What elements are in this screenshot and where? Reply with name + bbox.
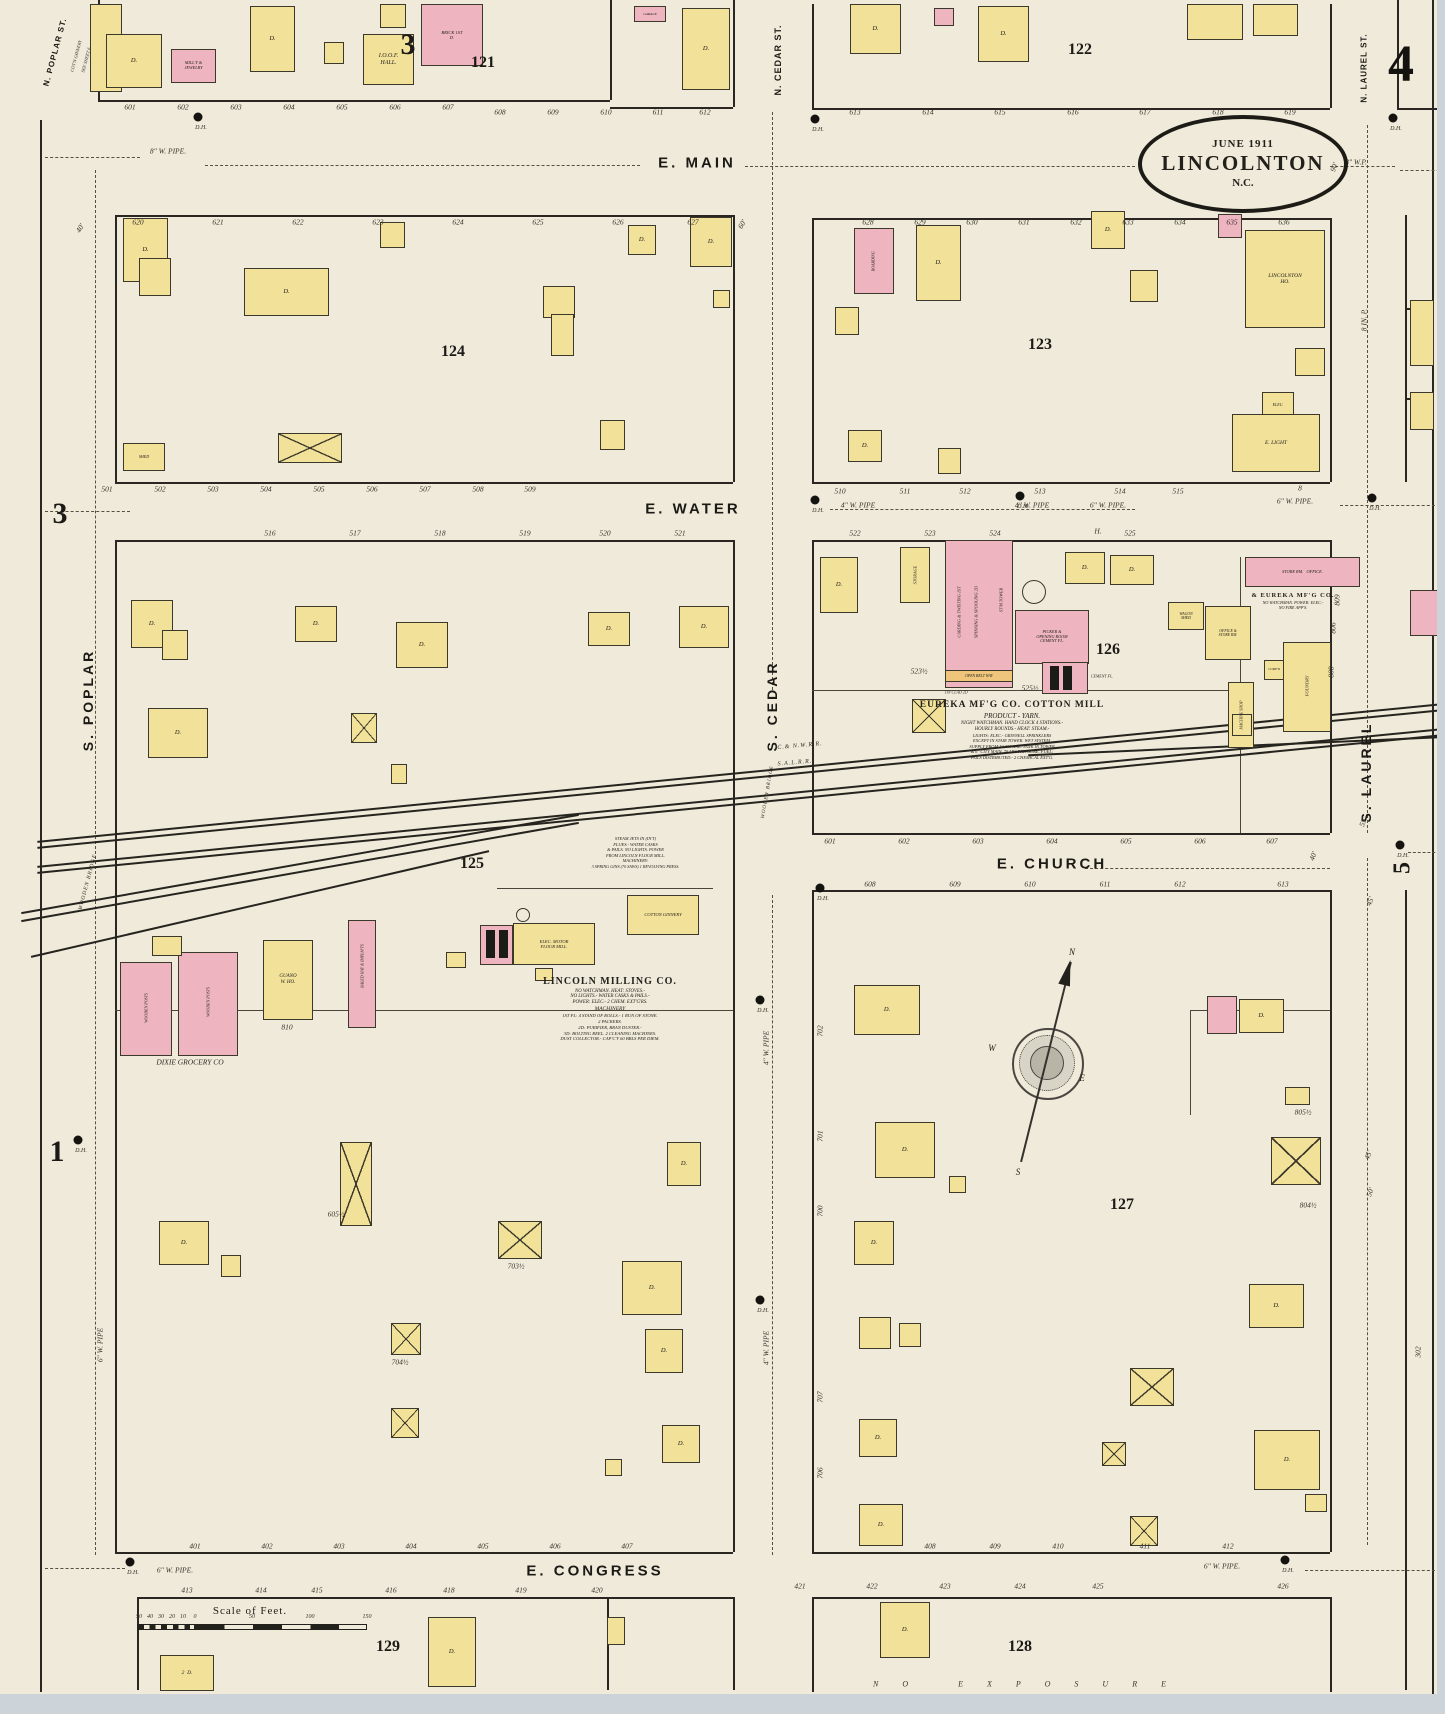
- building-label: OPEN BELT WAY: [965, 674, 993, 678]
- house-number: 418: [443, 1586, 454, 1595]
- compass-point-N: N: [1069, 947, 1075, 957]
- scale-caption: Scale of Feet.: [213, 1605, 287, 1617]
- block-boundary-line: [115, 215, 733, 217]
- water-pipe-label: 8" W.P.: [1345, 158, 1367, 167]
- scale-tick-label: 0: [194, 1614, 197, 1620]
- railroad-label: C.& N.W.R.R.: [777, 741, 823, 751]
- building-label: PICKER & OPENING ROOM CEMENT FL.: [1036, 630, 1067, 644]
- house-number: 502: [154, 485, 165, 494]
- building-label: COMP'R: [1268, 668, 1280, 672]
- building: D.: [396, 622, 448, 668]
- building: [516, 908, 530, 922]
- block-number: 129: [376, 1638, 400, 1656]
- water-pipe-dashed-line: [1367, 858, 1368, 1545]
- building: [1410, 590, 1438, 636]
- house-number: 523: [924, 529, 935, 538]
- house-number: 605: [1120, 837, 1131, 846]
- building: [938, 448, 961, 474]
- building-interior-label: WOODEN POSTS: [144, 993, 149, 1023]
- building: E. LIGHT: [1232, 414, 1320, 472]
- building-label: D.: [283, 288, 289, 295]
- house-number: 416: [385, 1586, 396, 1595]
- block-boundary-line: [812, 540, 1330, 542]
- building-interior-label: CARDING & TWISTING 1ST: [957, 586, 962, 637]
- building-interior-label: WOODEN POSTS: [206, 987, 211, 1017]
- house-number: 609: [949, 880, 960, 889]
- building: [1130, 270, 1158, 302]
- building-label: LINCOLNTON HO.: [1268, 273, 1302, 286]
- house-number: 412: [1222, 1542, 1233, 1551]
- building: 2 D.: [160, 1655, 214, 1691]
- house-number: 409: [989, 1542, 1000, 1551]
- dh-hydrant-label: D.H.: [1017, 504, 1029, 510]
- block-boundary-line: [1330, 1597, 1332, 1692]
- house-number: 503: [207, 485, 218, 494]
- house-number: 406: [549, 1542, 560, 1551]
- building-label: D.: [872, 25, 878, 32]
- annotation-line: NO FIRE APP'S.: [1238, 605, 1348, 610]
- building-label: D.: [131, 57, 137, 64]
- street-label: S. CEDAR: [764, 661, 780, 752]
- building: D.: [244, 268, 329, 316]
- scale-tick-label: 20: [169, 1614, 175, 1620]
- block-boundary-line: [812, 890, 1330, 892]
- annotation-line: EUREKA MF'G CO. COTTON MILL: [912, 700, 1112, 712]
- building: STORE RM. OFFICE.: [1245, 557, 1360, 587]
- building-label: I.O.O.F. HALL.: [379, 53, 399, 67]
- building-label: D.: [703, 45, 709, 52]
- building: PICKER & OPENING ROOM CEMENT FL.: [1015, 610, 1089, 664]
- house-number: 603: [972, 837, 983, 846]
- dh-hydrant-label: D.H.: [812, 127, 824, 133]
- building: D.: [1239, 999, 1284, 1033]
- house-number: 422: [866, 1582, 877, 1591]
- water-pipe-label: 8" W. PIPE.: [150, 147, 186, 156]
- building: [1295, 348, 1325, 376]
- house-number: 522: [849, 529, 860, 538]
- block-boundary-line: [812, 4, 814, 108]
- street-label: E. MAIN: [658, 155, 736, 172]
- compass-needle-head: [1058, 958, 1076, 986]
- annotation-line: & EUREKA MF'G CO.: [1238, 592, 1348, 600]
- lot-number: 702: [816, 1025, 825, 1036]
- annotation-line: PRODUCT - YARN.: [912, 712, 1112, 721]
- building-interior-label: BALED HAY & IMPLM'TS: [360, 944, 365, 988]
- building: D.: [875, 1122, 935, 1178]
- building: [1050, 666, 1059, 690]
- building-label: GUANO W. HO.: [279, 974, 296, 986]
- water-pipe-dashed-line: [45, 1568, 125, 1569]
- building-label: D.: [313, 620, 319, 627]
- building: [391, 1408, 419, 1438]
- house-number: 612: [699, 108, 710, 117]
- house-number: 608: [864, 880, 875, 889]
- block-number: 5: [1390, 862, 1417, 874]
- building: D.: [978, 6, 1029, 62]
- building: [498, 1221, 542, 1259]
- lot-number: 302: [1414, 1346, 1423, 1357]
- building: [499, 930, 508, 958]
- building: [139, 258, 171, 296]
- scale-tick-label: 150: [363, 1614, 372, 1620]
- block-number: 3: [53, 497, 68, 531]
- building: D.: [106, 34, 162, 88]
- building: [1253, 4, 1298, 36]
- building: [162, 630, 188, 660]
- block-number: 123: [1028, 336, 1052, 354]
- scale-tick-label: 100: [306, 1614, 315, 1620]
- water-pipe-label: 6" W. PIPE.: [157, 1566, 193, 1575]
- scale-tick-label: 10: [180, 1614, 186, 1620]
- block-boundary-line: [733, 1597, 735, 1690]
- house-number: H.: [1094, 527, 1101, 536]
- lot-number: 700: [816, 1205, 825, 1216]
- building: D.: [295, 606, 337, 642]
- scale-tick-label: 50: [136, 1614, 142, 1620]
- water-pipe-label: 6" W. PIPE.: [1277, 497, 1313, 506]
- dimension-label: 45': [1364, 895, 1376, 907]
- house-number: 521: [674, 529, 685, 538]
- house-number: 525: [1124, 529, 1135, 538]
- block-number: 3: [401, 28, 416, 62]
- house-number: 507: [419, 485, 430, 494]
- house-number: 515: [1172, 487, 1183, 496]
- house-number: 420: [591, 1586, 602, 1595]
- building: D.: [679, 606, 729, 648]
- building-label: D.: [1273, 1302, 1279, 1309]
- building-label: D.: [649, 1284, 655, 1291]
- block-boundary-line: [733, 540, 735, 1552]
- building-label: GARAGE: [643, 12, 657, 16]
- lot-number: 707: [816, 1391, 825, 1402]
- block-number: 125: [460, 855, 484, 873]
- block-boundary-line: [497, 888, 713, 889]
- dh-hydrant-label: D.H.: [757, 1008, 769, 1014]
- house-number: 425: [1092, 1582, 1103, 1591]
- building-label: D.: [708, 238, 714, 245]
- building: [1207, 996, 1237, 1034]
- street-label: N. CEDAR ST.: [773, 24, 783, 95]
- house-number: 607: [1266, 837, 1277, 846]
- house-number: 517: [349, 529, 360, 538]
- annotation-line: DUST COLLECTOR.- CAP'C'Y 60 BBLS PER DIE…: [500, 1036, 720, 1042]
- house-number: 401: [189, 1542, 200, 1551]
- scale-tick-label: 30: [158, 1614, 164, 1620]
- building-label: D.: [175, 729, 181, 736]
- house-number: 609: [547, 108, 558, 117]
- house-number: 520: [599, 529, 610, 538]
- building: D.: [667, 1142, 701, 1186]
- building: [713, 290, 730, 308]
- scan-edge-right: [1437, 0, 1445, 1714]
- no-exposure-label: N O E X P O S U R E: [873, 1680, 1177, 1689]
- house-number: 613: [849, 108, 860, 117]
- house-number: 504: [260, 485, 271, 494]
- dh-hydrant-label: D.H.: [757, 1308, 769, 1314]
- house-number: 414: [255, 1586, 266, 1595]
- dh-hydrant-label: D.H.: [195, 125, 207, 131]
- house-number: 613: [1277, 880, 1288, 889]
- water-pipe-dashed-line: [772, 895, 773, 1555]
- railroad-track-line: [21, 822, 579, 922]
- building: SHED: [123, 443, 165, 471]
- building-label: D.: [449, 1648, 455, 1655]
- building: [899, 1323, 921, 1347]
- block-boundary-line: [98, 100, 610, 102]
- house-number: 506: [366, 485, 377, 494]
- lot-number: 523½: [911, 667, 928, 676]
- building: [278, 433, 342, 463]
- building-label: D.: [902, 1626, 908, 1633]
- building-label: D.: [181, 1239, 187, 1246]
- scan-edge-bottom: [0, 1694, 1445, 1714]
- page-number: 4: [1388, 35, 1414, 94]
- building-label: OFFICE & STORE RM.: [1219, 629, 1238, 638]
- scale-bar-fine: [137, 1624, 195, 1630]
- block-boundary-line: [115, 540, 733, 542]
- block-boundary-line: [1405, 215, 1407, 482]
- house-number: 623: [372, 218, 383, 227]
- house-number: 621: [212, 218, 223, 227]
- water-pipe-dashed-line: [45, 157, 140, 158]
- house-number: 510: [834, 487, 845, 496]
- sanborn-map-sheet: D.MILL'Y & JEWELRYD.I.O.O.F. HALL.BRICK …: [0, 0, 1445, 1714]
- building: D.: [622, 1261, 682, 1315]
- house-number: 513: [1034, 487, 1045, 496]
- block-boundary-line: [812, 1597, 814, 1692]
- house-number: 408: [924, 1542, 935, 1551]
- note-label: CEMENT FL.: [1091, 674, 1113, 679]
- building: D.: [820, 557, 858, 613]
- house-number: 625: [532, 218, 543, 227]
- water-pipe-label: 6" W. PIPE.: [1090, 501, 1126, 510]
- block-boundary-line: [812, 1552, 1330, 1554]
- dh-hydrant-dot: [811, 115, 820, 124]
- building: BOARDING: [854, 228, 894, 294]
- block-number: 122: [1068, 41, 1092, 59]
- building: D.: [880, 1602, 930, 1658]
- house-number: 614: [922, 108, 933, 117]
- building-label: D.: [875, 1434, 881, 1441]
- building: [1102, 1442, 1126, 1466]
- lot-number: 703½: [508, 1262, 525, 1271]
- block-boundary-line: [1330, 218, 1332, 482]
- block-boundary-line: [812, 833, 1330, 835]
- house-number: 611: [1100, 880, 1111, 889]
- house-number: 413: [181, 1586, 192, 1595]
- dh-hydrant-label: D.H.: [1397, 853, 1409, 859]
- house-number: 8: [1298, 484, 1302, 493]
- block-boundary-line: [1432, 0, 1434, 1694]
- water-pipe-label: 4" W. PIPE: [762, 1031, 771, 1065]
- house-number: 615: [994, 108, 1005, 117]
- annotation-block: LINCOLN MILLING CO.NO WATCHMAN. HEAT: ST…: [500, 976, 720, 1042]
- house-number: 610: [600, 108, 611, 117]
- building: LINCOLNTON HO.: [1245, 230, 1325, 328]
- street-label: N. POPLAR ST.: [42, 17, 69, 87]
- building-label: ELEC.: [1273, 403, 1284, 408]
- building-label: D.: [1082, 564, 1088, 571]
- house-number: 512: [959, 487, 970, 496]
- house-number: 605: [336, 103, 347, 112]
- building-label: 2 D.: [182, 1670, 193, 1676]
- building: [1410, 392, 1434, 430]
- building: COMP'R: [1264, 660, 1284, 680]
- building-label: D.: [1105, 226, 1111, 233]
- railroad-track-line: [37, 728, 1442, 867]
- water-pipe-dashed-line: [205, 165, 640, 166]
- building: [486, 930, 495, 958]
- house-number: 629: [914, 218, 925, 227]
- lot-number: 805½: [1295, 1108, 1312, 1117]
- house-number: 624: [452, 218, 463, 227]
- building-label: WAGON SHED: [1179, 612, 1192, 621]
- building: WAGON SHED: [1168, 602, 1204, 630]
- house-number: 616: [1067, 108, 1078, 117]
- house-number: 627: [687, 218, 698, 227]
- block-boundary-line: [137, 1597, 139, 1690]
- house-number: 501: [101, 485, 112, 494]
- building-label: D.: [862, 442, 868, 449]
- building: D.: [916, 225, 961, 301]
- building-interior-label: FOUNDRY: [1305, 676, 1310, 697]
- building: [605, 1459, 622, 1476]
- building: [221, 1255, 241, 1277]
- annotation-line: PAILS DISTRIBUTED.- 2 CHEMICAL EXT'G.: [912, 755, 1112, 761]
- building-label: D.: [681, 1160, 687, 1167]
- lot-number: 704½: [392, 1358, 409, 1367]
- dh-hydrant-dot: [811, 496, 820, 505]
- building-label: MILL'Y & JEWELRY: [184, 61, 202, 71]
- building: D.: [850, 4, 901, 54]
- dimension-label: 50': [1364, 1186, 1376, 1198]
- building-label: E. LIGHT: [1265, 440, 1287, 446]
- block-boundary-line: [1330, 4, 1332, 108]
- building-label: D.: [884, 1006, 890, 1013]
- building-label: COTTON GINNERY: [644, 912, 681, 917]
- street-label: E. CHURCH: [997, 856, 1107, 873]
- building: D.: [1110, 555, 1154, 585]
- dh-hydrant-label: D.H.: [75, 1148, 87, 1154]
- annotation-block: STEAM JETS IN (IN'T)FLUES.- WATER CASKS&…: [568, 836, 703, 869]
- dh-hydrant-dot: [1396, 841, 1405, 850]
- title-oval: June 1911 Lincolnton N.C.: [1138, 115, 1348, 213]
- building: [551, 314, 574, 356]
- dh-hydrant-dot: [1368, 494, 1377, 503]
- building: [835, 307, 859, 335]
- building: [480, 925, 513, 965]
- building-label: D.: [878, 1521, 884, 1528]
- building-label: D.: [701, 623, 707, 630]
- building: GARAGE: [634, 6, 666, 22]
- building: D.: [859, 1504, 903, 1546]
- house-number: 411: [1140, 1542, 1151, 1551]
- building: D.: [1091, 211, 1125, 249]
- building: [1187, 4, 1243, 40]
- house-number: 508: [472, 485, 483, 494]
- house-number: 620: [132, 218, 143, 227]
- building: [600, 420, 625, 450]
- street-label: E. CONGRESS: [526, 1563, 663, 1580]
- dh-hydrant-dot: [816, 884, 825, 893]
- building: [949, 1176, 966, 1193]
- block-number: 124: [441, 343, 465, 361]
- block-boundary-line: [1190, 1010, 1191, 1115]
- building: D.: [859, 1419, 897, 1457]
- dh-hydrant-dot: [1016, 492, 1025, 501]
- title-city: Lincolnton: [1161, 151, 1324, 176]
- building-label: D.: [871, 1239, 877, 1246]
- building: D.: [645, 1329, 683, 1373]
- house-number: 610: [1024, 880, 1035, 889]
- lot-number: 605½: [328, 1210, 345, 1219]
- building: [1410, 300, 1434, 366]
- house-number: 419: [515, 1586, 526, 1595]
- compass-point-E: E: [1079, 1073, 1085, 1083]
- building: COTTON GINNERY: [627, 895, 699, 935]
- water-pipe-label: 4" W. PIPE: [762, 1331, 771, 1365]
- house-number: 619: [1284, 108, 1295, 117]
- street-label: E. WATER: [645, 501, 740, 518]
- water-pipe-dashed-line: [1305, 1570, 1440, 1571]
- block-number: 121: [471, 54, 495, 72]
- building-label: D.: [606, 625, 612, 632]
- lot-number: 706: [816, 1467, 825, 1478]
- building-label: SHED: [139, 455, 149, 460]
- building: [859, 1317, 891, 1349]
- block-boundary-line: [733, 0, 735, 107]
- lot-number: 810: [281, 1023, 292, 1032]
- house-number: 404: [405, 1542, 416, 1551]
- house-number: 509: [524, 485, 535, 494]
- railroad-label: WOODEN BRIDGE: [761, 765, 775, 819]
- building-label: D.: [639, 236, 645, 243]
- house-number: 606: [389, 103, 400, 112]
- house-number: 607: [442, 103, 453, 112]
- building: [446, 952, 466, 968]
- house-number: 617: [1139, 108, 1150, 117]
- water-pipe-label: 6" W. PIPE.: [1204, 1562, 1240, 1571]
- house-number: 604: [283, 103, 294, 112]
- house-number: 402: [261, 1542, 272, 1551]
- building: [380, 4, 406, 28]
- street-label: N. LAUREL ST.: [1360, 33, 1369, 102]
- building: MILL'Y & JEWELRY: [171, 49, 216, 83]
- house-number: 514: [1114, 487, 1125, 496]
- building: OFFICE & STORE RM.: [1205, 606, 1251, 660]
- block-number: 127: [1110, 1196, 1134, 1214]
- house-number: 405: [477, 1542, 488, 1551]
- building-label: D.: [678, 1440, 684, 1447]
- house-number: 505: [313, 485, 324, 494]
- building-interior-label: SPINNING & SPOOLING 2D: [974, 586, 979, 638]
- house-number: 602: [898, 837, 909, 846]
- block-boundary-line: [812, 218, 814, 482]
- building: D.: [1065, 552, 1105, 584]
- building: GUANO W. HO.: [263, 940, 313, 1020]
- house-number: 606: [1194, 837, 1205, 846]
- house-number: 601: [824, 837, 835, 846]
- building: D.: [250, 6, 295, 72]
- dimension-label: 45': [1362, 1149, 1374, 1161]
- house-number: 635: [1226, 218, 1237, 227]
- house-number: 632: [1070, 218, 1081, 227]
- water-pipe-dashed-line: [1085, 868, 1330, 869]
- block-boundary-line: [610, 0, 612, 100]
- dh-hydrant-dot: [756, 996, 765, 1005]
- dh-hydrant-label: D.H.: [127, 1570, 139, 1576]
- building: D.: [682, 8, 730, 90]
